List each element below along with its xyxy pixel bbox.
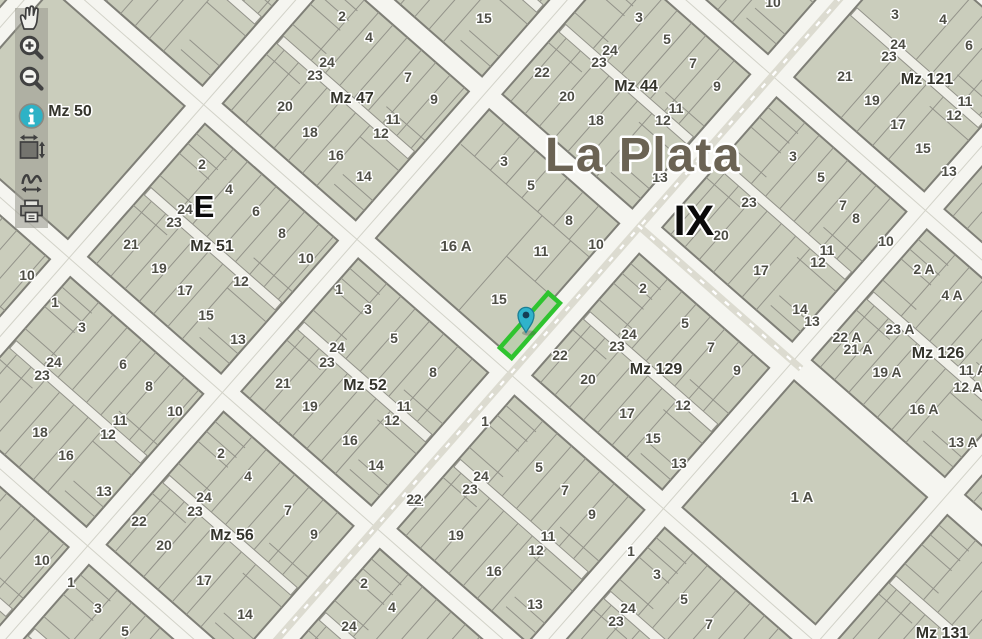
svg-text:4: 4 bbox=[244, 468, 252, 484]
svg-text:16: 16 bbox=[328, 147, 344, 163]
svg-text:3: 3 bbox=[789, 148, 797, 164]
svg-text:6: 6 bbox=[119, 356, 127, 372]
svg-text:23: 23 bbox=[307, 67, 323, 83]
svg-text:23: 23 bbox=[741, 194, 757, 210]
svg-text:13: 13 bbox=[941, 163, 957, 179]
svg-text:24: 24 bbox=[341, 618, 357, 634]
svg-text:10: 10 bbox=[167, 403, 183, 419]
svg-text:3: 3 bbox=[78, 319, 86, 335]
svg-text:23: 23 bbox=[166, 214, 182, 230]
svg-text:1: 1 bbox=[627, 543, 635, 559]
svg-text:9: 9 bbox=[733, 362, 741, 378]
svg-text:12 A: 12 A bbox=[953, 379, 982, 395]
svg-text:23: 23 bbox=[608, 613, 624, 629]
svg-text:6: 6 bbox=[965, 37, 973, 53]
svg-text:La Plata: La Plata bbox=[545, 129, 741, 182]
svg-text:20: 20 bbox=[713, 227, 729, 243]
svg-text:23: 23 bbox=[319, 354, 335, 370]
svg-text:8: 8 bbox=[565, 212, 573, 228]
svg-text:4 A: 4 A bbox=[941, 287, 962, 303]
svg-text:Mz 50: Mz 50 bbox=[48, 103, 92, 120]
svg-text:Mz 52: Mz 52 bbox=[343, 377, 387, 394]
svg-text:12: 12 bbox=[373, 125, 389, 141]
svg-text:7: 7 bbox=[705, 616, 713, 632]
svg-text:15: 15 bbox=[491, 291, 507, 307]
svg-text:23: 23 bbox=[881, 48, 897, 64]
svg-text:17: 17 bbox=[619, 405, 635, 421]
svg-text:23: 23 bbox=[187, 503, 203, 519]
svg-text:7: 7 bbox=[839, 197, 847, 213]
svg-text:5: 5 bbox=[681, 315, 689, 331]
svg-text:1 A: 1 A bbox=[791, 489, 814, 506]
svg-text:7: 7 bbox=[561, 482, 569, 498]
svg-text:IX: IX bbox=[674, 197, 715, 245]
svg-text:10: 10 bbox=[588, 236, 604, 252]
svg-text:12: 12 bbox=[675, 397, 691, 413]
svg-text:2: 2 bbox=[217, 445, 225, 461]
svg-text:19: 19 bbox=[151, 260, 167, 276]
svg-text:1: 1 bbox=[67, 574, 75, 590]
svg-text:9: 9 bbox=[713, 78, 721, 94]
svg-text:2: 2 bbox=[198, 156, 206, 172]
svg-text:1: 1 bbox=[335, 281, 343, 297]
svg-text:20: 20 bbox=[580, 371, 596, 387]
svg-text:5: 5 bbox=[535, 459, 543, 475]
svg-text:21: 21 bbox=[837, 68, 853, 84]
svg-text:Mz 44: Mz 44 bbox=[614, 78, 658, 95]
svg-text:23 A: 23 A bbox=[885, 321, 914, 337]
svg-text:9: 9 bbox=[310, 526, 318, 542]
svg-text:10: 10 bbox=[34, 552, 50, 568]
svg-text:13: 13 bbox=[527, 596, 543, 612]
svg-text:3: 3 bbox=[364, 301, 372, 317]
svg-text:Mz 129: Mz 129 bbox=[630, 361, 683, 378]
svg-text:19: 19 bbox=[302, 398, 318, 414]
svg-text:23: 23 bbox=[609, 338, 625, 354]
svg-text:7: 7 bbox=[689, 55, 697, 71]
svg-text:19 A: 19 A bbox=[872, 364, 901, 380]
svg-text:12: 12 bbox=[810, 254, 826, 270]
svg-text:19: 19 bbox=[448, 527, 464, 543]
svg-text:13: 13 bbox=[230, 331, 246, 347]
svg-text:5: 5 bbox=[527, 177, 535, 193]
svg-text:16: 16 bbox=[342, 432, 358, 448]
svg-text:5: 5 bbox=[121, 623, 129, 639]
svg-text:24: 24 bbox=[329, 339, 345, 355]
svg-text:17: 17 bbox=[196, 572, 212, 588]
svg-text:10: 10 bbox=[298, 250, 314, 266]
svg-text:12: 12 bbox=[655, 112, 671, 128]
svg-text:15: 15 bbox=[645, 430, 661, 446]
svg-text:20: 20 bbox=[277, 98, 293, 114]
svg-text:10: 10 bbox=[765, 0, 781, 10]
svg-text:13: 13 bbox=[96, 483, 112, 499]
svg-text:1: 1 bbox=[51, 294, 59, 310]
svg-text:14: 14 bbox=[368, 457, 384, 473]
svg-text:13: 13 bbox=[804, 313, 820, 329]
svg-text:5: 5 bbox=[817, 169, 825, 185]
svg-text:12: 12 bbox=[100, 426, 116, 442]
svg-text:5: 5 bbox=[390, 330, 398, 346]
svg-text:18: 18 bbox=[588, 112, 604, 128]
svg-text:22: 22 bbox=[131, 513, 147, 529]
svg-text:3: 3 bbox=[500, 153, 508, 169]
svg-text:7: 7 bbox=[284, 502, 292, 518]
svg-text:Mz 51: Mz 51 bbox=[190, 238, 234, 255]
svg-text:15: 15 bbox=[198, 307, 214, 323]
svg-text:6: 6 bbox=[252, 203, 260, 219]
svg-text:10: 10 bbox=[878, 233, 894, 249]
svg-text:10: 10 bbox=[19, 267, 35, 283]
svg-text:22: 22 bbox=[534, 64, 550, 80]
svg-text:18: 18 bbox=[32, 424, 48, 440]
svg-text:12: 12 bbox=[233, 273, 249, 289]
svg-text:21: 21 bbox=[275, 375, 291, 391]
svg-text:Mz 121: Mz 121 bbox=[901, 71, 954, 88]
svg-text:4: 4 bbox=[939, 11, 947, 27]
svg-text:4: 4 bbox=[365, 29, 373, 45]
svg-text:16 A: 16 A bbox=[440, 238, 471, 255]
svg-text:2: 2 bbox=[338, 8, 346, 24]
svg-text:23: 23 bbox=[591, 54, 607, 70]
svg-text:16: 16 bbox=[58, 447, 74, 463]
svg-text:7: 7 bbox=[404, 69, 412, 85]
svg-text:E: E bbox=[194, 189, 215, 224]
svg-text:21 A: 21 A bbox=[843, 341, 872, 357]
svg-text:14: 14 bbox=[356, 168, 372, 184]
svg-text:15: 15 bbox=[476, 10, 492, 26]
svg-text:5: 5 bbox=[680, 591, 688, 607]
svg-text:Mz 126: Mz 126 bbox=[912, 345, 965, 362]
svg-text:11 A: 11 A bbox=[959, 362, 982, 378]
svg-text:12: 12 bbox=[946, 107, 962, 123]
svg-text:8: 8 bbox=[429, 364, 437, 380]
svg-text:17: 17 bbox=[890, 116, 906, 132]
svg-text:19: 19 bbox=[864, 92, 880, 108]
svg-text:4: 4 bbox=[225, 181, 233, 197]
svg-text:5: 5 bbox=[663, 31, 671, 47]
svg-text:16 A: 16 A bbox=[909, 401, 938, 417]
svg-text:3: 3 bbox=[891, 6, 899, 22]
svg-text:22: 22 bbox=[406, 491, 422, 507]
svg-text:12: 12 bbox=[528, 542, 544, 558]
svg-text:16: 16 bbox=[486, 563, 502, 579]
svg-text:13: 13 bbox=[671, 455, 687, 471]
svg-text:17: 17 bbox=[177, 282, 193, 298]
svg-text:22: 22 bbox=[552, 347, 568, 363]
svg-text:11: 11 bbox=[669, 100, 684, 116]
svg-text:23: 23 bbox=[34, 367, 50, 383]
svg-text:23: 23 bbox=[462, 481, 478, 497]
svg-text:3: 3 bbox=[635, 9, 643, 25]
svg-text:12: 12 bbox=[384, 412, 400, 428]
svg-text:20: 20 bbox=[559, 88, 575, 104]
svg-text:20: 20 bbox=[156, 537, 172, 553]
svg-text:4: 4 bbox=[388, 599, 396, 615]
svg-text:1: 1 bbox=[481, 413, 489, 429]
svg-text:21: 21 bbox=[123, 236, 139, 252]
svg-text:Mz 131: Mz 131 bbox=[916, 625, 969, 639]
svg-text:8: 8 bbox=[145, 378, 153, 394]
svg-text:2: 2 bbox=[360, 575, 368, 591]
svg-text:2 A: 2 A bbox=[913, 261, 934, 277]
svg-text:3: 3 bbox=[94, 600, 102, 616]
svg-text:9: 9 bbox=[588, 506, 596, 522]
svg-text:14: 14 bbox=[237, 606, 253, 622]
svg-text:8: 8 bbox=[852, 210, 860, 226]
svg-text:11: 11 bbox=[534, 243, 549, 259]
svg-text:7: 7 bbox=[707, 339, 715, 355]
svg-text:2: 2 bbox=[639, 280, 647, 296]
svg-text:9: 9 bbox=[430, 91, 438, 107]
svg-text:17: 17 bbox=[753, 262, 769, 278]
svg-text:8: 8 bbox=[278, 225, 286, 241]
svg-text:13 A: 13 A bbox=[948, 434, 977, 450]
svg-text:Mz 56: Mz 56 bbox=[210, 527, 254, 544]
svg-text:18: 18 bbox=[302, 124, 318, 140]
svg-text:Mz 47: Mz 47 bbox=[330, 90, 374, 107]
svg-text:3: 3 bbox=[653, 566, 661, 582]
svg-text:15: 15 bbox=[915, 140, 931, 156]
